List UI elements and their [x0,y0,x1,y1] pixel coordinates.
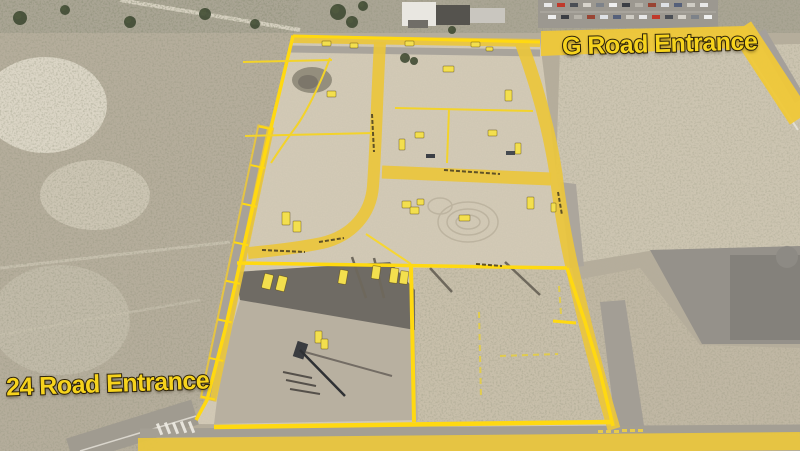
lot-marker [551,203,556,212]
lot-marker [371,266,381,280]
lot-marker [527,197,534,209]
lot-marker [282,212,290,225]
g-road-entrance-label: G Road Entrance [562,27,758,61]
lot-marker [327,91,336,97]
lot-marker [417,199,424,205]
lot-marker [402,201,411,208]
lot-marker [415,132,424,138]
lot-marker [486,47,493,51]
truck [426,154,435,158]
lot-marker [505,90,512,101]
annotated-aerial-site-map: G Road Entrance 24 Road Entrance [0,0,800,451]
lot-marker [410,207,419,214]
lot-marker [389,268,399,284]
lot-marker [350,43,358,48]
lot-marker [515,143,521,154]
lot-marker [321,339,328,349]
lot-marker [399,139,405,150]
lot-marker [488,130,497,136]
interior-way-road [382,172,551,179]
lot-marker [471,42,480,47]
lot-marker [443,66,454,72]
bottom-road [138,441,800,447]
lot-marker [322,41,331,46]
truck [506,151,515,155]
lot-marker [399,271,409,285]
lot-marker [405,41,414,46]
lot-marker [459,215,470,221]
lot-marker [293,221,301,232]
